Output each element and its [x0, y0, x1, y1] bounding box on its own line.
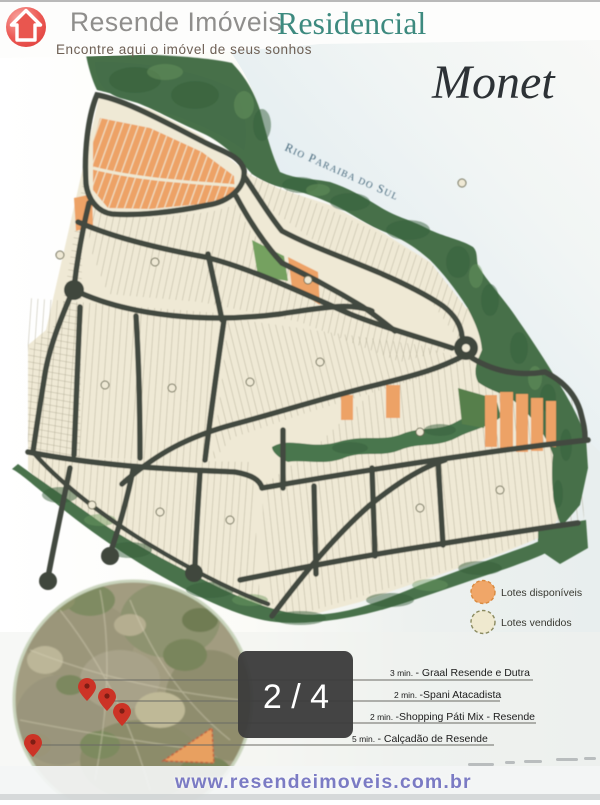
svg-text:Residencial: Residencial: [277, 5, 426, 41]
svg-text:2 / 4: 2 / 4: [263, 678, 329, 716]
svg-text:Monet: Monet: [431, 56, 556, 109]
svg-text:2 min. -Spani Atacadista: 2 min. -Spani Atacadista: [394, 689, 501, 701]
svg-text:Lotes vendidos: Lotes vendidos: [501, 617, 572, 629]
svg-text:Encontre aqui o imóvel de seus: Encontre aqui o imóvel de seus sonhos: [56, 42, 312, 57]
svg-text:Resende Imóveis: Resende Imóveis: [70, 7, 282, 37]
svg-text:5 min. - Calçadão de Resende: 5 min. - Calçadão de Resende: [352, 733, 488, 745]
svg-text:www.resendeimoveis.com.br: www.resendeimoveis.com.br: [174, 771, 472, 793]
svg-text:3 min. - Graal Resende e Dutra: 3 min. - Graal Resende e Dutra: [390, 667, 530, 679]
svg-text:Lotes disponíveis: Lotes disponíveis: [501, 587, 582, 599]
svg-text:2 min. -Shopping Páti Mix - Re: 2 min. -Shopping Páti Mix - Resende: [370, 711, 535, 723]
